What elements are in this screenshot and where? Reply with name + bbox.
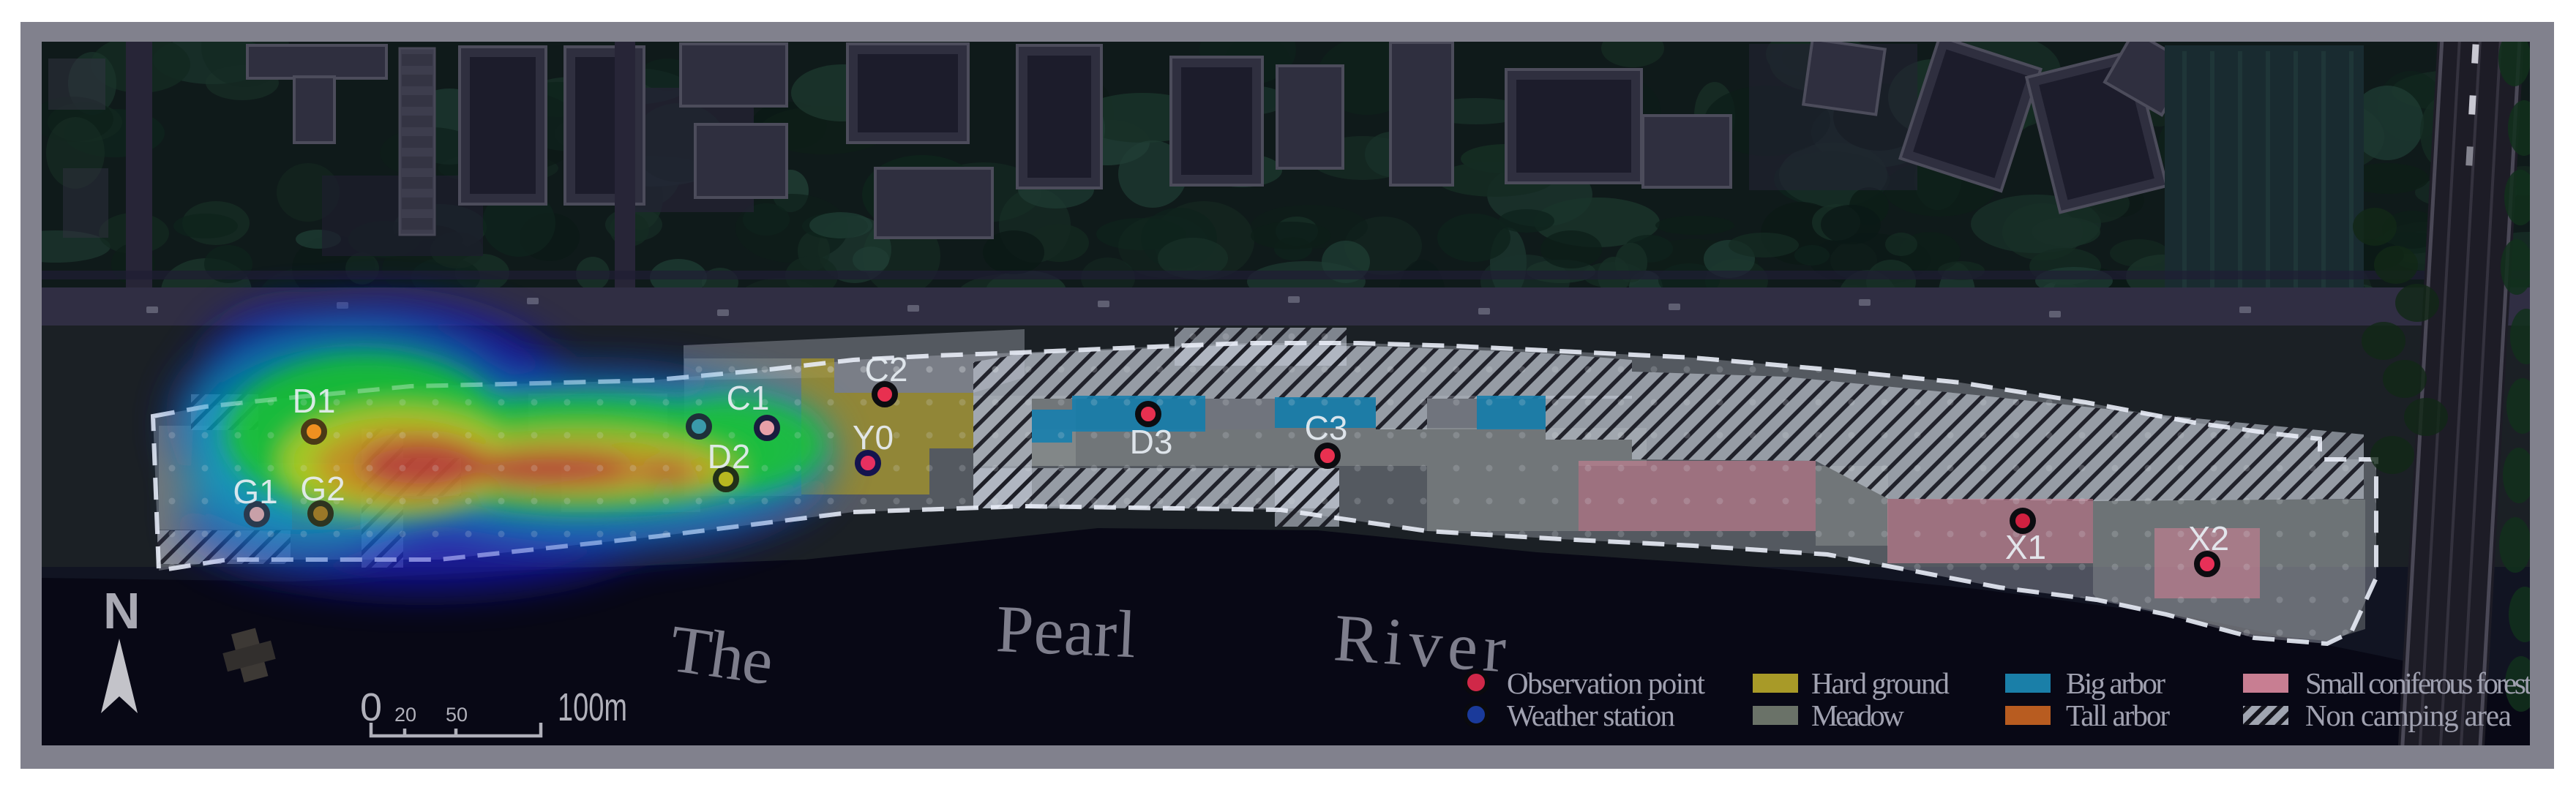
svg-text:Tall arbor: Tall arbor: [2066, 699, 2170, 732]
svg-text:N: N: [103, 582, 141, 639]
svg-text:Pearl: Pearl: [995, 591, 1137, 671]
svg-text:C3: C3: [1305, 409, 1348, 447]
svg-text:X2: X2: [2188, 519, 2229, 557]
svg-text:G2: G2: [300, 470, 345, 508]
svg-text:Observation point: Observation point: [1507, 666, 1706, 700]
svg-text:D2: D2: [708, 437, 751, 475]
svg-text:Big arbor: Big arbor: [2066, 666, 2165, 700]
svg-text:C2: C2: [865, 350, 908, 388]
svg-text:D3: D3: [1130, 423, 1173, 461]
svg-text:100m: 100m: [558, 685, 627, 729]
svg-text:Weather station: Weather station: [1507, 699, 1675, 732]
svg-text:D1: D1: [293, 382, 336, 420]
svg-text:Non camping area: Non camping area: [2305, 699, 2512, 732]
svg-text:50: 50: [446, 704, 468, 726]
svg-text:Hard ground: Hard ground: [1811, 666, 1950, 700]
svg-text:20: 20: [394, 704, 416, 726]
svg-text:Y0: Y0: [853, 418, 894, 456]
svg-text:Small coniferous forest: Small coniferous forest: [2305, 666, 2530, 700]
svg-text:The: The: [665, 611, 778, 699]
svg-text:C1: C1: [727, 379, 770, 417]
svg-text:G1: G1: [233, 473, 277, 511]
svg-text:Meadow: Meadow: [1811, 699, 1904, 732]
svg-text:X1: X1: [2005, 528, 2046, 566]
